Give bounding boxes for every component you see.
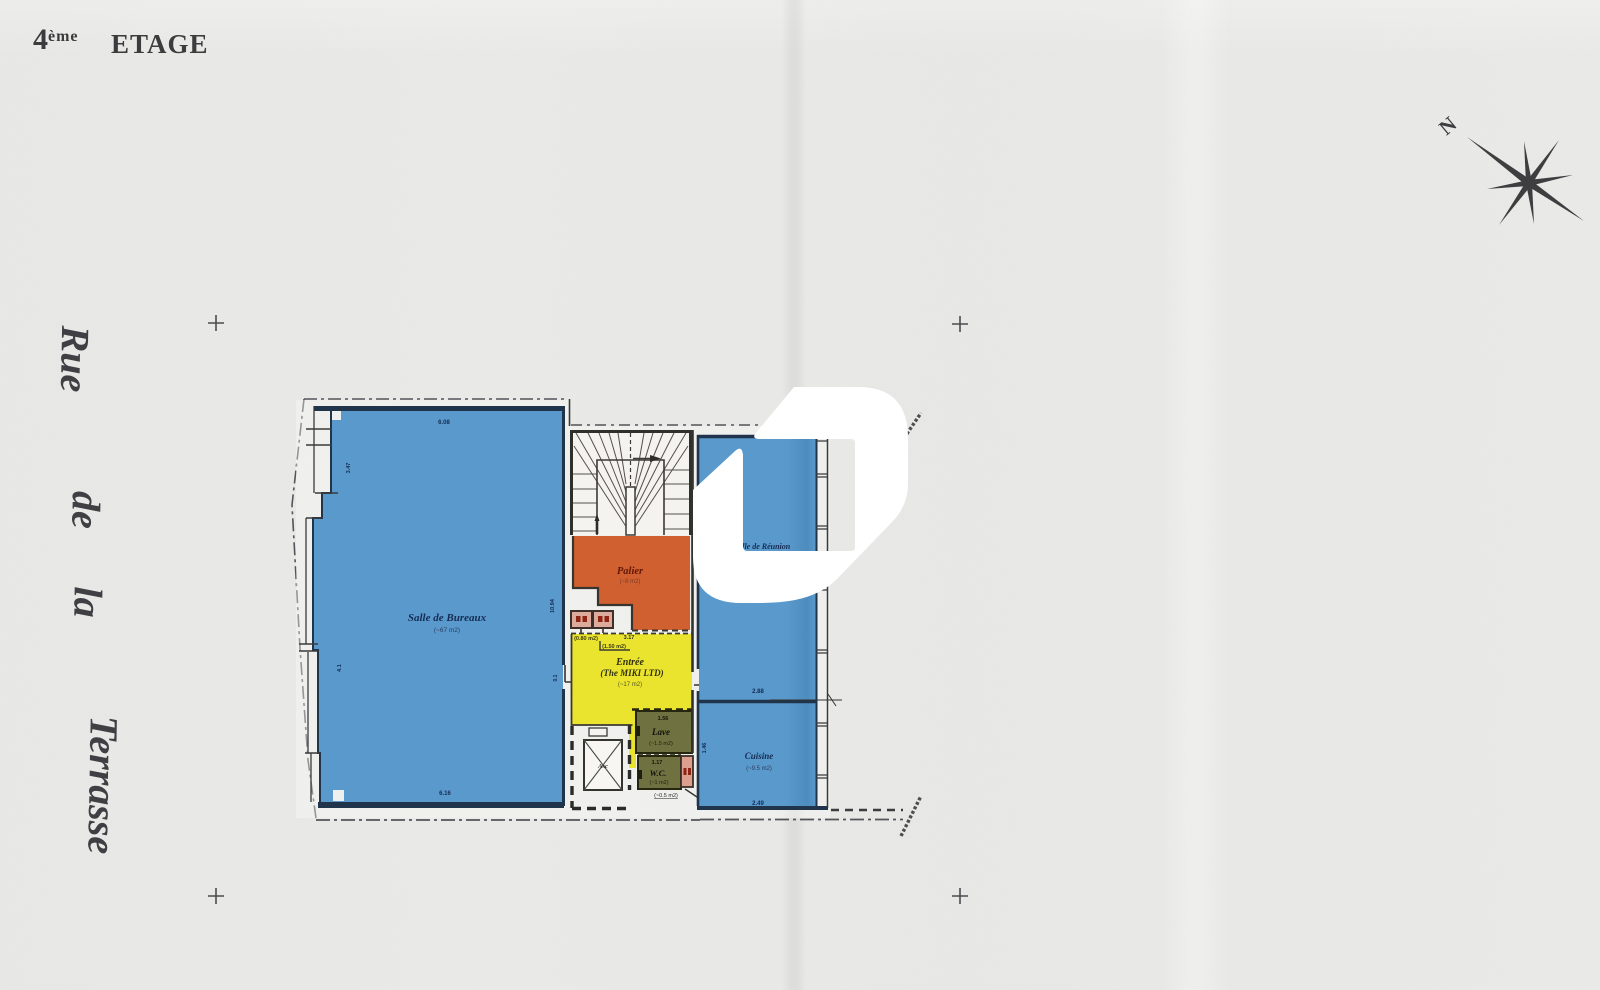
svg-text:Asc: Asc: [597, 763, 608, 770]
svg-text:(~67 m2): (~67 m2): [434, 627, 460, 634]
svg-text:(~1.5 m2): (~1.5 m2): [649, 741, 673, 747]
svg-text:6.08: 6.08: [438, 420, 450, 426]
svg-text:2.49: 2.49: [752, 801, 764, 807]
svg-text:1.46: 1.46: [702, 743, 708, 754]
svg-text:2.88: 2.88: [752, 689, 764, 695]
svg-text:1.17: 1.17: [652, 760, 663, 766]
svg-text:(~0.5 m2): (~0.5 m2): [654, 793, 678, 799]
svg-text:(0.80 m2): (0.80 m2): [574, 636, 598, 642]
svg-text:(The MIKI LTD): (The MIKI LTD): [600, 668, 663, 678]
svg-text:W.C.: W.C.: [650, 768, 667, 778]
svg-text:6.16: 6.16: [439, 791, 451, 797]
svg-text:3.17: 3.17: [624, 635, 635, 641]
svg-text:0.1: 0.1: [553, 674, 559, 681]
svg-text:3.47: 3.47: [346, 463, 352, 474]
svg-text:Palier: Palier: [617, 566, 644, 577]
svg-text:4.1: 4.1: [337, 664, 343, 672]
svg-text:Lave: Lave: [651, 727, 670, 737]
svg-text:10.94: 10.94: [550, 598, 556, 613]
svg-text:Entrée: Entrée: [615, 657, 644, 668]
svg-text:Salle de Bureaux: Salle de Bureaux: [408, 612, 487, 624]
svg-text:(~1 m2): (~1 m2): [649, 780, 668, 786]
svg-text:Cuisine: Cuisine: [745, 751, 774, 761]
svg-text:(~8 m2): (~8 m2): [620, 579, 641, 585]
svg-text:(1.50 m2): (1.50 m2): [602, 644, 626, 650]
svg-text:1.56: 1.56: [658, 716, 669, 722]
svg-text:(~9.5 m2): (~9.5 m2): [746, 766, 772, 772]
svg-text:(~17 m2): (~17 m2): [618, 682, 642, 688]
